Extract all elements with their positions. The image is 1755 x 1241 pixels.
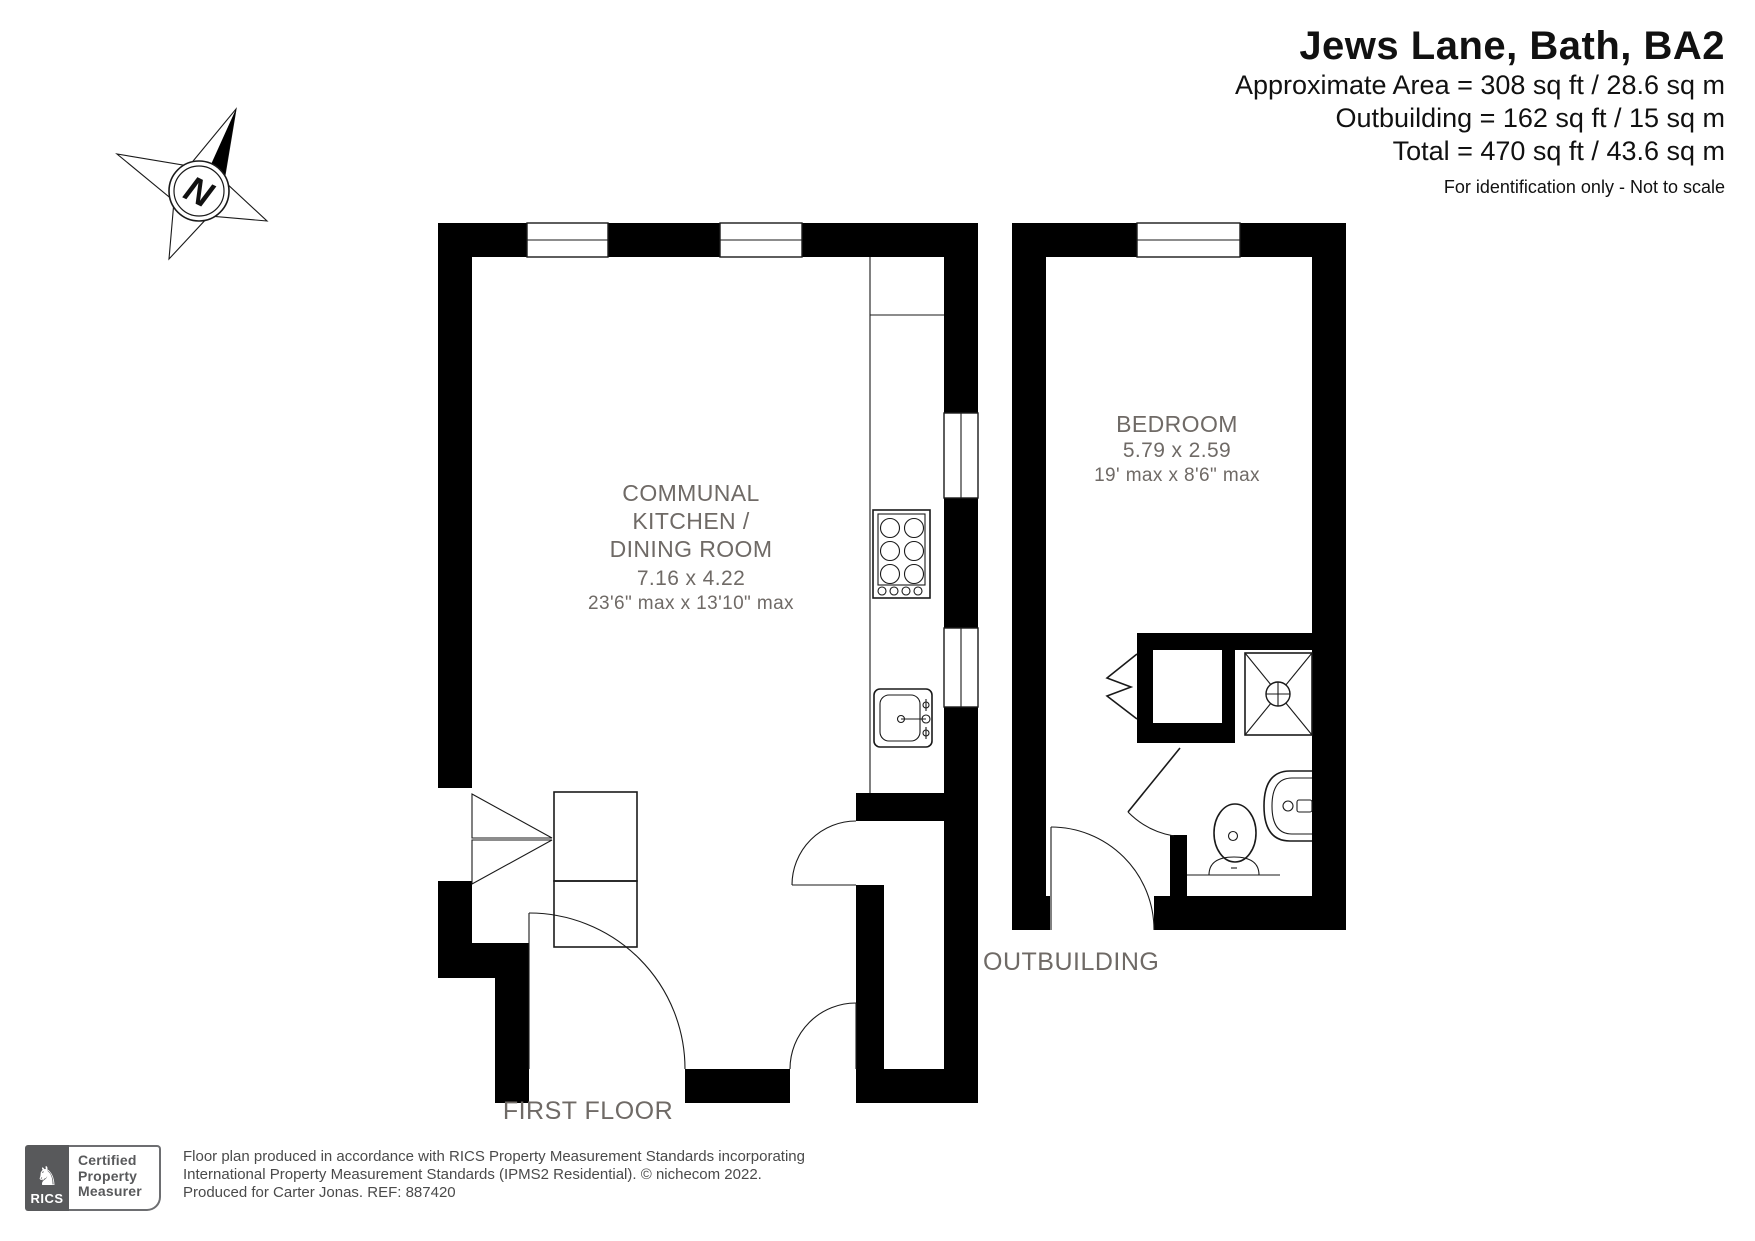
wall (802, 223, 978, 257)
wall (438, 881, 472, 943)
rics-lion-icon: ♞ (35, 1163, 58, 1189)
shower-icon (1245, 653, 1312, 735)
wall (1240, 223, 1346, 257)
wall (1312, 257, 1346, 930)
scale-disclaimer: For identification only - Not to scale (1235, 177, 1725, 198)
wall (944, 257, 978, 413)
header: Jews Lane, Bath, BA2 Approximate Area = … (1235, 24, 1725, 198)
room-dims-imperial: 23'6" max x 13'10" max (588, 592, 794, 615)
wall (1012, 223, 1137, 257)
attribution: Floor plan produced in accordance with R… (183, 1145, 805, 1202)
attribution-line: Produced for Carter Jonas. REF: 887420 (183, 1184, 805, 1202)
toilet-icon (1187, 804, 1280, 875)
wall (608, 223, 720, 257)
hob-icon (873, 510, 930, 598)
rics-label: RICS (30, 1191, 63, 1206)
room-name-line: KITCHEN / (588, 507, 794, 535)
approximate-area: Approximate Area = 308 sq ft / 28.6 sq m (1235, 70, 1725, 101)
door-arc (790, 1003, 856, 1069)
compass-icon: N (117, 109, 267, 259)
window-icon (1137, 223, 1240, 257)
sink-icon (874, 689, 932, 747)
wall (1012, 896, 1050, 930)
floor-label-outbuilding: OUTBUILDING (983, 948, 1159, 977)
window-icon (944, 628, 978, 707)
page-title: Jews Lane, Bath, BA2 (1235, 24, 1725, 68)
total-area: Total = 470 sq ft / 43.6 sq m (1235, 136, 1725, 167)
badge-line: Property (78, 1169, 155, 1185)
door-arc (529, 913, 685, 1069)
basin-icon (1264, 771, 1312, 841)
wall (856, 1069, 978, 1103)
floor-label-first-floor: FIRST FLOOR (503, 1097, 673, 1126)
badge-line: Certified (78, 1153, 155, 1169)
wall (1137, 723, 1235, 743)
door-arc (1051, 827, 1154, 930)
room-label-bedroom: BEDROOM 5.79 x 2.59 19' max x 8'6" max (1094, 410, 1260, 487)
window-icon (944, 413, 978, 498)
footer: ♞ RICS Certified Property Measurer Floor… (25, 1145, 805, 1211)
door-arc (792, 821, 856, 885)
room-dims-metric: 5.79 x 2.59 (1094, 438, 1260, 464)
door-arc (1128, 748, 1180, 836)
wall (856, 885, 884, 1069)
window-icon (720, 223, 802, 257)
wall (438, 223, 527, 257)
room-dims-imperial: 19' max x 8'6" max (1094, 464, 1260, 487)
room-label-kitchen: COMMUNAL KITCHEN / DINING ROOM 7.16 x 4.… (588, 479, 794, 615)
certified-property-measurer-badge: Certified Property Measurer (69, 1145, 161, 1211)
first-floor-plan (438, 223, 978, 1103)
room-dims-metric: 7.16 x 4.22 (588, 566, 794, 592)
wall (438, 257, 472, 788)
room-name: BEDROOM (1094, 410, 1260, 438)
wall (856, 793, 944, 821)
wall (1012, 257, 1046, 930)
attribution-line: Floor plan produced in accordance with R… (183, 1148, 805, 1166)
window-icon (527, 223, 608, 257)
attribution-line: International Property Measurement Stand… (183, 1166, 805, 1184)
cupboard (554, 792, 637, 947)
wall (1137, 633, 1312, 650)
wall (1170, 835, 1187, 930)
room-name-line: COMMUNAL (588, 479, 794, 507)
wall (1222, 650, 1235, 723)
wall (944, 498, 978, 628)
room-name-line: DINING ROOM (588, 535, 794, 563)
wall (944, 707, 978, 1103)
wall (438, 943, 529, 978)
bifold-door-icon (1107, 654, 1137, 719)
rics-logo: ♞ RICS (25, 1145, 69, 1211)
double-door-icon (472, 794, 552, 884)
wall (1137, 650, 1153, 723)
wall (685, 1069, 790, 1103)
outbuilding-plan (1012, 223, 1346, 930)
badge-line: Measurer (78, 1184, 155, 1200)
wall (495, 978, 529, 1103)
outbuilding-area: Outbuilding = 162 sq ft / 15 sq m (1235, 103, 1725, 134)
